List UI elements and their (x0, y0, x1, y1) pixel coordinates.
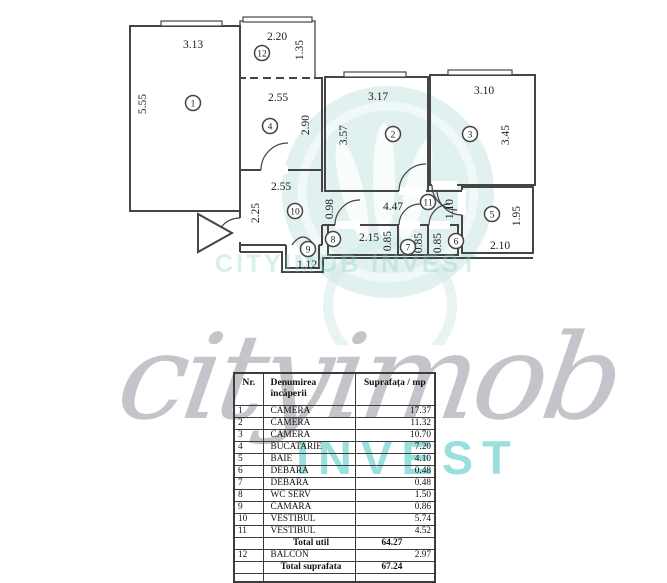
cell-name: DEBARA (263, 466, 355, 478)
room-badge: 12 (255, 46, 270, 61)
dim-label: 3.57 (338, 125, 350, 145)
cell-nr: 11 (234, 526, 263, 538)
table-bottom-spacer (234, 574, 435, 583)
floorplan-page: { "colors": { "wall": "#454545", "accent… (0, 0, 667, 563)
cell-area: 1.50 (355, 490, 435, 502)
cell-name: VESTIBUL (263, 514, 355, 526)
room-badge: 2 (386, 127, 401, 142)
svg-text:6: 6 (454, 238, 459, 248)
dim-label: 4.47 (383, 201, 403, 213)
table-row: 5BAIE4.10 (234, 454, 435, 466)
dim-label: 0.85 (432, 233, 444, 253)
cell-area: 0.48 (355, 466, 435, 478)
dim-label: 1.95 (511, 206, 523, 226)
svg-text:2: 2 (391, 131, 396, 141)
svg-text:4: 4 (268, 123, 273, 133)
cell-area: 4.10 (355, 454, 435, 466)
svg-text:1: 1 (191, 100, 196, 110)
dim-label: 2.90 (300, 115, 312, 135)
cell-nr: 9 (234, 502, 263, 514)
room-badge: 4 (263, 119, 278, 134)
svg-text:9: 9 (306, 246, 311, 256)
cell-name: BUCATARIE (263, 442, 355, 454)
cell-area: 0.86 (355, 502, 435, 514)
cell-name: VESTIBUL (263, 526, 355, 538)
room-badge: 6 (449, 234, 464, 249)
cell-name: CAMARA (263, 502, 355, 514)
balcon-row: 12BALCON2.97 (234, 550, 435, 562)
dim-label: 3.17 (368, 91, 388, 103)
room-badge: 3 (463, 127, 478, 142)
cell-area: 2.97 (355, 550, 435, 562)
cell-nr (234, 562, 263, 574)
table-row: 9CAMARA0.86 (234, 502, 435, 514)
cell-nr: 8 (234, 490, 263, 502)
cell-area: 7.20 (355, 442, 435, 454)
cell-area: 11.32 (355, 418, 435, 430)
dim-label: 2.10 (490, 240, 510, 252)
total-util-label: Total util (263, 538, 355, 550)
room-badge: 9 (301, 242, 316, 257)
cell-name: CAMERA (263, 418, 355, 430)
svg-text:7: 7 (406, 244, 411, 254)
cell-name: WC SERV (263, 490, 355, 502)
room-badge: 7 (401, 240, 416, 255)
cell-name: CAMERA (263, 406, 355, 418)
cell-name: DEBARA (263, 478, 355, 490)
table-row: 6DEBARA0.48 (234, 466, 435, 478)
svg-text:5: 5 (490, 211, 495, 221)
dim-label: 2.55 (271, 181, 291, 193)
cell-nr: 5 (234, 454, 263, 466)
table-row: 7DEBARA0.48 (234, 478, 435, 490)
total-suprafata-row: Total suprafata 67.24 (234, 562, 435, 574)
total-suprafata-value: 67.24 (355, 562, 435, 574)
room-areas-table: Nr. Denumirea încăperii Suprafața / mp 1… (233, 372, 436, 583)
cell-nr: 2 (234, 418, 263, 430)
room-badge: 10 (288, 204, 303, 219)
total-suprafata-label: Total suprafata (263, 562, 355, 574)
table-row: 1CAMERA17.37 (234, 406, 435, 418)
cell-area: 0.48 (355, 478, 435, 490)
header-denumirea: Denumirea încăperii (263, 373, 355, 406)
room-badge: 5 (485, 207, 500, 222)
cell-nr: 12 (234, 550, 263, 562)
svg-text:8: 8 (331, 236, 336, 246)
room-badge: 11 (421, 195, 436, 210)
entrance-arrow-icon (198, 214, 232, 252)
dim-label: 0.98 (324, 199, 336, 219)
cell-nr (234, 538, 263, 550)
dim-label: 2.55 (268, 92, 288, 104)
table-row: 3CAMERA10.70 (234, 430, 435, 442)
dim-label: 3.13 (183, 39, 203, 51)
cell-name: BAIE (263, 454, 355, 466)
table-header-row: Nr. Denumirea încăperii Suprafața / mp (234, 373, 435, 406)
header-nr: Nr. (234, 373, 263, 406)
watermark-ghost-text: CITYIMOB INVEST (215, 250, 479, 278)
total-util-row: Total util 64.27 (234, 538, 435, 550)
window-marks (161, 17, 512, 77)
table-row: 4BUCATARIE7.20 (234, 442, 435, 454)
svg-text:12: 12 (257, 50, 267, 60)
table-row: 2CAMERA11.32 (234, 418, 435, 430)
dim-label: 2.25 (250, 203, 262, 223)
dim-label: 1.35 (294, 40, 306, 60)
cell-area: 5.74 (355, 514, 435, 526)
svg-text:3: 3 (468, 131, 473, 141)
cell-nr: 10 (234, 514, 263, 526)
table-row: 8WC SERV1.50 (234, 490, 435, 502)
table-row: 10VESTIBUL5.74 (234, 514, 435, 526)
svg-text:10: 10 (290, 208, 300, 218)
svg-text:11: 11 (423, 199, 432, 209)
dim-label: 1.10 (444, 199, 456, 219)
cell-nr: 6 (234, 466, 263, 478)
cell-nr: 3 (234, 430, 263, 442)
dim-label: 3.45 (500, 125, 512, 145)
room-badge: 8 (326, 232, 341, 247)
cell-area: 4.52 (355, 526, 435, 538)
cell-nr: 4 (234, 442, 263, 454)
cell-area: 10.70 (355, 430, 435, 442)
table-row: 11VESTIBUL4.52 (234, 526, 435, 538)
floorplan-drawing: CITYIMOB INVEST 3.13 5.55 2.20 1.35 2.55… (0, 0, 667, 345)
room-badge: 1 (186, 96, 201, 111)
cell-name: BALCON (263, 550, 355, 562)
header-suprafata: Suprafața / mp (355, 373, 435, 406)
cell-name: CAMERA (263, 430, 355, 442)
dim-label: 3.10 (474, 85, 494, 97)
dim-label: 5.55 (137, 94, 149, 114)
dim-label: 2.15 (359, 232, 379, 244)
cell-nr: 7 (234, 478, 263, 490)
cell-nr: 1 (234, 406, 263, 418)
dim-label: 0.85 (382, 231, 394, 251)
cell-area: 17.37 (355, 406, 435, 418)
dim-label: 1.12 (297, 259, 317, 271)
dim-label: 2.20 (267, 31, 287, 43)
total-util-value: 64.27 (355, 538, 435, 550)
